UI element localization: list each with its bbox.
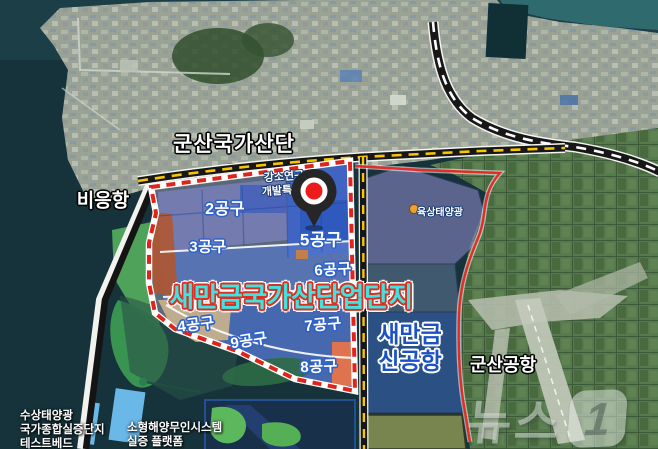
label-zone-8: 8공구	[300, 355, 338, 377]
label-floating-solar-line3: 테스트베드	[20, 435, 73, 449]
saemangeum-map: 군산국가산단 비응항 강소연구 개발특구 2공구 3공구 5공구 6공구 4공구…	[0, 0, 658, 449]
label-zone-3: 3공구	[189, 236, 226, 257]
news1-logo-box: 1	[567, 389, 628, 448]
news1-watermark: 뉴스 1	[464, 383, 630, 449]
label-rnd-zone-line2: 개발특구	[261, 181, 303, 200]
label-zone-2: 2공구	[205, 195, 245, 219]
label-bieung-port: 비응항	[77, 186, 129, 213]
label-zone-9: 9공구	[229, 327, 269, 354]
label-zone-4: 4공구	[176, 311, 216, 336]
label-new-airport-line2: 신공항	[378, 342, 441, 376]
label-zone-5: 5공구	[300, 226, 342, 251]
label-onshore-solar: 육상태양광	[417, 204, 463, 219]
label-main-title: 새만금국가산단업단지	[169, 276, 412, 315]
label-marine-unmanned-line2: 실증 플랫폼	[127, 433, 183, 449]
label-gunsan-national-complex: 군산국가산단	[173, 128, 295, 158]
label-layer: 군산국가산단 비응항 강소연구 개발특구 2공구 3공구 5공구 6공구 4공구…	[0, 0, 658, 449]
news1-logo-number: 1	[583, 395, 612, 442]
news1-brand-text: 뉴스	[464, 383, 566, 449]
label-zone-7: 7공구	[303, 312, 342, 336]
label-gunsan-airport: 군산공항	[470, 351, 536, 377]
